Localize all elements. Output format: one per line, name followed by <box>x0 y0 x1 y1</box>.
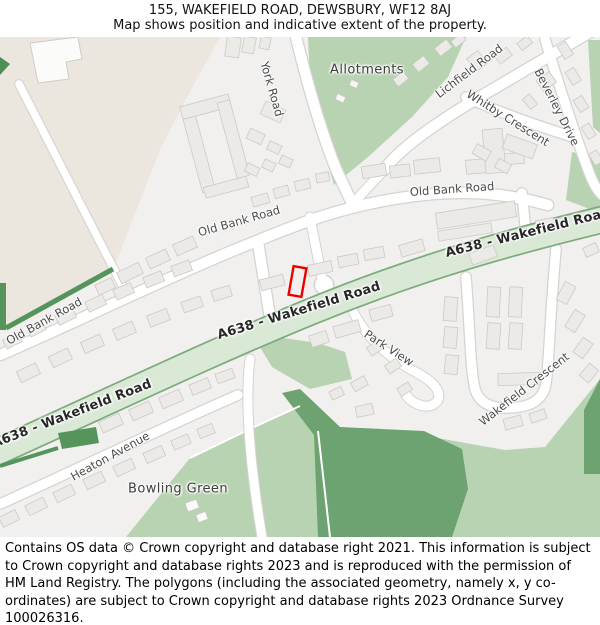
map-label-allotments: Allotments <box>330 63 404 78</box>
map-label-bowling-green: Bowling Green <box>128 482 228 497</box>
header: 155, WAKEFIELD ROAD, DEWSBURY, WF12 8AJ … <box>0 0 600 37</box>
map: Allotments York Road Lichfield Road Whit… <box>0 37 600 537</box>
copyright-footer: Contains OS data © Crown copyright and d… <box>0 537 600 625</box>
page-title: 155, WAKEFIELD ROAD, DEWSBURY, WF12 8AJ <box>0 0 600 18</box>
property-map-report: 155, WAKEFIELD ROAD, DEWSBURY, WF12 8AJ … <box>0 0 600 625</box>
page-subtitle: Map shows position and indicative extent… <box>0 18 600 33</box>
